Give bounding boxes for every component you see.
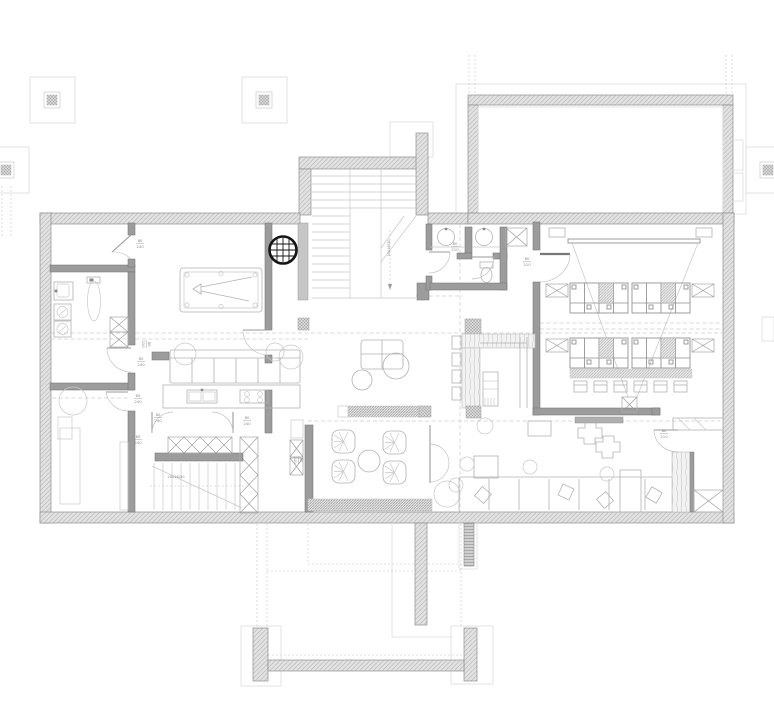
- door: [106, 392, 128, 411]
- billiard-table: [180, 268, 262, 312]
- svg-text:80: 80: [136, 434, 141, 439]
- technical-room: [58, 387, 128, 510]
- dining-terrace: [290, 406, 463, 511]
- main-staircase: [312, 168, 416, 298]
- side-table-round: [460, 457, 474, 471]
- bridge-abutment: [464, 628, 477, 681]
- sideboard: [575, 417, 623, 423]
- svg-text:80: 80: [138, 238, 143, 243]
- svg-text:80: 80: [453, 241, 458, 246]
- laundry-room: [54, 277, 128, 347]
- door-size-label: 80240: [134, 393, 142, 404]
- living-area: [163, 340, 409, 408]
- coffee-table-group: [352, 340, 409, 390]
- home-cinema: [546, 228, 714, 412]
- bar-grill: [485, 398, 494, 406]
- stair-dimension-label: 20x16/30: [387, 239, 391, 257]
- svg-text:240: 240: [154, 418, 162, 423]
- stairwell-annex: [299, 122, 433, 215]
- svg-text:210: 210: [523, 262, 531, 267]
- stair-glass-partition: [298, 223, 308, 300]
- svg-text:80: 80: [525, 256, 530, 261]
- kitchen-counter: [163, 385, 300, 408]
- sofa: [170, 350, 300, 383]
- door-size-label: 80240: [293, 456, 304, 464]
- washbasin: [476, 229, 493, 246]
- pouf: [383, 353, 409, 379]
- billiard-cue: [201, 291, 249, 301]
- svg-text:240: 240: [134, 440, 142, 445]
- bar-counter-wood: [462, 334, 535, 348]
- exterior-stair-stub: [464, 523, 474, 566]
- floor-plan-page: 8024080240802108024080240802408024080240…: [0, 0, 774, 708]
- dining-table: [358, 450, 380, 472]
- wall-top-mid: [428, 213, 468, 224]
- rack-row: [168, 437, 232, 453]
- stair-dimension-label: 20x16/30: [167, 475, 185, 479]
- bathroom: [430, 228, 527, 283]
- puzzle-table: [578, 422, 602, 444]
- door: [112, 235, 131, 259]
- svg-text:210: 210: [141, 340, 146, 348]
- wardrobe-corner: [672, 418, 723, 512]
- door: [212, 412, 233, 433]
- svg-text:80: 80: [156, 412, 161, 417]
- door-size-label: 80210: [451, 241, 459, 252]
- rack-column: [240, 437, 258, 513]
- bar-area: [452, 319, 535, 418]
- double-door: [430, 425, 449, 483]
- courtyard-wall-right: [723, 105, 733, 213]
- door: [107, 348, 131, 372]
- svg-text:210: 210: [660, 434, 668, 439]
- door-size-label: 80240: [154, 412, 162, 423]
- door-size-label: 80240: [243, 415, 251, 426]
- door-size-label: 80240: [137, 356, 145, 367]
- stair-break-line: [152, 466, 242, 508]
- svg-text:80: 80: [662, 428, 667, 433]
- svg-text:210: 210: [451, 247, 459, 252]
- pouf: [352, 370, 372, 390]
- shelf: [673, 418, 723, 430]
- side-table-round: [600, 467, 614, 481]
- billiard-rack-triangle: [193, 284, 201, 294]
- annex-wall-left: [299, 169, 311, 215]
- outer-walls: [40, 213, 734, 523]
- door: [429, 252, 450, 273]
- side-table-round: [174, 343, 196, 365]
- projection-screen: [568, 239, 700, 243]
- svg-text:80: 80: [245, 415, 250, 420]
- svg-text:80: 80: [147, 342, 152, 347]
- door: [243, 330, 268, 355]
- side-table-round: [477, 418, 493, 434]
- door-size-label: 80210: [523, 256, 531, 267]
- svg-text:240: 240: [243, 421, 251, 426]
- stove: [240, 390, 268, 403]
- chaise: [474, 456, 498, 478]
- toilet: [480, 262, 493, 283]
- column: [465, 319, 481, 334]
- billiard-cue: [201, 277, 252, 287]
- cellar-staircase: [150, 437, 258, 513]
- side-table-round: [523, 460, 537, 474]
- svg-text:80: 80: [139, 356, 144, 361]
- door-size-label: 80240: [136, 238, 144, 249]
- svg-text:240: 240: [293, 456, 298, 464]
- puzzle-table: [596, 436, 620, 458]
- lounge: [459, 417, 675, 512]
- wall-bottom: [40, 512, 734, 523]
- chaise: [620, 470, 641, 512]
- wall-left: [40, 213, 51, 523]
- hedge-planter: [348, 406, 420, 417]
- platform-step: [570, 369, 692, 378]
- door-size-label: 80240: [134, 434, 142, 445]
- retaining-wall-stub: [415, 523, 427, 625]
- coffee-table: [528, 421, 551, 436]
- courtyard-floor-outline: [478, 107, 723, 213]
- courtyard-wall-left: [468, 105, 478, 213]
- stair-break-line: [381, 216, 404, 248]
- courtyard-wall-top: [468, 95, 733, 105]
- door-size-label: 80210: [141, 340, 152, 348]
- dartboard: [270, 237, 297, 264]
- bridge-abutment: [253, 628, 268, 681]
- svg-text:80: 80: [299, 458, 304, 463]
- annex-wall-right: [416, 133, 428, 215]
- svg-text:240: 240: [134, 399, 142, 404]
- hedge-planter: [308, 499, 432, 511]
- wall-top-right: [468, 213, 734, 224]
- wall-top-left: [40, 213, 300, 224]
- wall-right: [723, 213, 734, 523]
- equipment-unit: [120, 442, 128, 510]
- svg-text:240: 240: [136, 244, 144, 249]
- bar-counter-wood: [462, 348, 480, 408]
- water-tank: [59, 387, 87, 415]
- equipment-unit: [60, 428, 80, 504]
- courtyard-above: [456, 55, 746, 214]
- wardrobe: [672, 452, 690, 512]
- speaker: [549, 228, 565, 237]
- annex-wall-top: [299, 157, 428, 169]
- door: [540, 254, 570, 282]
- speaker: [696, 228, 712, 237]
- floor-plan-drawing: 8024080240802108024080240802408024080240…: [0, 0, 774, 708]
- bridge-deck: [268, 660, 464, 671]
- cellar-stair-treads: [154, 463, 235, 510]
- stair-direction-arrow: [388, 284, 392, 290]
- billiard-room: [180, 237, 297, 313]
- svg-text:240: 240: [137, 362, 145, 367]
- ironing-board: [88, 281, 101, 321]
- svg-text:80: 80: [136, 393, 141, 398]
